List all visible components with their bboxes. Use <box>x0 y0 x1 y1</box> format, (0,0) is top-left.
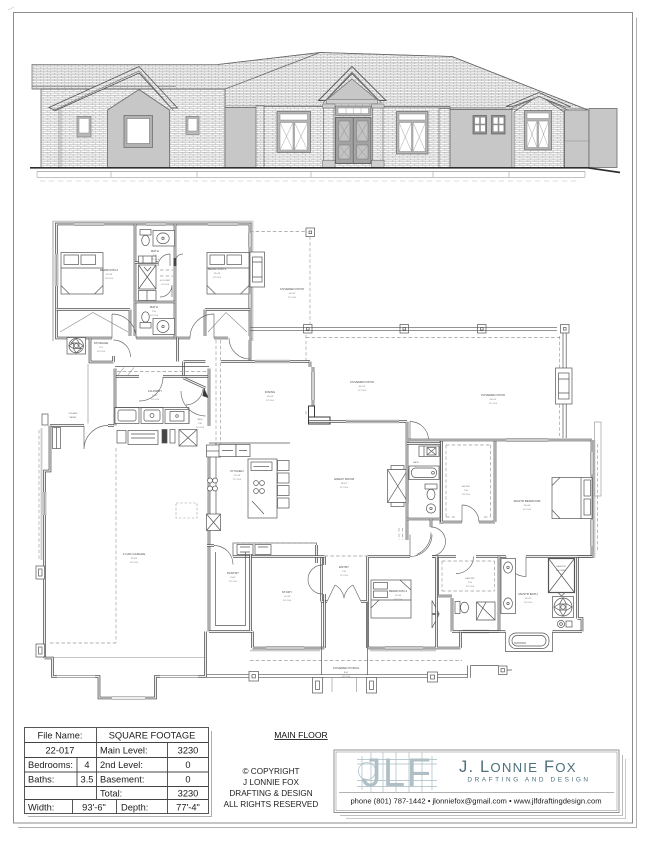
svg-text:10' CLG: 10' CLG <box>105 278 113 280</box>
svg-text:10' CLG: 10' CLG <box>394 599 402 601</box>
svg-text:7'x6': 7'x6' <box>198 423 203 425</box>
svg-text:Main Level:: Main Level: <box>100 746 148 756</box>
svg-text:3.5: 3.5 <box>81 775 94 785</box>
svg-text:10' CLG: 10' CLG <box>524 602 532 604</box>
svg-text:10' CLG: 10' CLG <box>342 676 350 678</box>
svg-text:10' CLG: 10' CLG <box>283 600 291 602</box>
svg-text:JLF: JLF <box>361 751 432 795</box>
svg-text:PANTRY: PANTRY <box>227 571 239 575</box>
svg-text:MUD: MUD <box>198 419 203 421</box>
svg-text:MASTR BATH: MASTR BATH <box>518 592 537 596</box>
svg-text:BATH: BATH <box>151 249 159 253</box>
svg-text:14'x13': 14'x13' <box>267 396 274 398</box>
svg-text:phone (801) 787-1442 • jlonnie: phone (801) 787-1442 • jlonniefox@gmail.… <box>350 797 601 806</box>
svg-text:12' CLG: 12' CLG <box>358 390 366 392</box>
svg-text:12'x13': 12'x13' <box>106 274 113 276</box>
svg-text:DINING: DINING <box>265 390 276 394</box>
svg-text:12'x13': 12'x13' <box>214 273 221 275</box>
svg-text:11'x13': 11'x13' <box>395 595 402 597</box>
svg-text:PANEL: PANEL <box>69 416 77 419</box>
svg-text:DRAFTING AND DESIGN: DRAFTING AND DESIGN <box>467 777 590 784</box>
svg-text:BATH: BATH <box>413 461 419 464</box>
svg-text:4: 4 <box>84 760 89 770</box>
svg-text:0: 0 <box>185 775 190 785</box>
svg-text:MAIN FLOOR: MAIN FLOOR <box>274 730 327 740</box>
svg-text:COVERED PATIO: COVERED PATIO <box>481 393 506 397</box>
svg-text:HIS WIC: HIS WIC <box>462 486 471 488</box>
svg-text:12'x12': 12'x12' <box>525 598 532 600</box>
svg-text:3230: 3230 <box>178 746 199 756</box>
svg-text:SQUARE FOOTAGE: SQUARE FOOTAGE <box>109 731 196 741</box>
svg-text:© COPYRIGHT: © COPYRIGHT <box>243 767 300 776</box>
svg-text:10' CLG: 10' CLG <box>213 277 221 279</box>
svg-text:10' CLG: 10' CLG <box>523 509 531 511</box>
svg-text:7'x9': 7'x9' <box>342 571 347 573</box>
svg-text:LAUNDRY: LAUNDRY <box>148 389 162 393</box>
svg-text:200 AMP: 200 AMP <box>69 412 78 415</box>
svg-text:12' CLG: 12' CLG <box>233 479 241 481</box>
svg-text:Depth:: Depth: <box>121 803 148 813</box>
svg-text:77'-4": 77'-4" <box>176 803 200 813</box>
svg-text:10'x12': 10'x12' <box>289 293 296 295</box>
svg-text:Width:: Width: <box>28 803 54 813</box>
svg-text:0: 0 <box>185 760 190 770</box>
svg-text:22-017: 22-017 <box>46 746 75 756</box>
svg-text:ENTRY: ENTRY <box>339 565 349 569</box>
svg-text:File Name:: File Name: <box>38 731 83 741</box>
svg-text:10' CLG: 10' CLG <box>97 351 105 353</box>
svg-text:STORAGE: STORAGE <box>94 341 109 345</box>
svg-text:3230: 3230 <box>178 789 199 799</box>
svg-text:2nd Level:: 2nd Level: <box>100 760 143 770</box>
svg-text:17'x13': 17'x13' <box>234 475 241 477</box>
svg-text:10' CLG: 10' CLG <box>462 494 470 496</box>
svg-text:HER WIC: HER WIC <box>465 578 475 580</box>
svg-text:93'-6": 93'-6" <box>82 803 106 813</box>
svg-text:J. LONNIE FOX: J. LONNIE FOX <box>459 758 577 776</box>
svg-text:12' CLG: 12' CLG <box>489 403 497 405</box>
svg-text:12' CLG: 12' CLG <box>340 487 348 489</box>
svg-text:DRAFTING & DESIGN: DRAFTING & DESIGN <box>229 789 312 798</box>
svg-text:7'x9': 7'x9' <box>464 490 469 492</box>
svg-text:10' CLG: 10' CLG <box>150 315 158 317</box>
svg-text:COVERED PATIO: COVERED PATIO <box>350 380 375 384</box>
svg-text:10' CLG: 10' CLG <box>196 427 204 429</box>
svg-text:MASTR BEDROOM: MASTR BEDROOM <box>514 499 541 503</box>
svg-text:COVERED PATIO: COVERED PATIO <box>280 287 305 291</box>
svg-text:11'x14': 11'x14' <box>284 596 291 598</box>
svg-text:S.CLOSET: S.CLOSET <box>160 280 171 282</box>
svg-text:10'x7': 10'x7' <box>152 395 158 397</box>
svg-text:3 CAR GARAGE: 3 CAR GARAGE <box>123 552 146 556</box>
svg-text:12' CLG: 12' CLG <box>288 297 296 299</box>
svg-text:BEDROOM 2: BEDROOM 2 <box>100 268 118 272</box>
svg-text:7'x7': 7'x7' <box>99 347 104 349</box>
svg-text:BATH: BATH <box>150 305 158 309</box>
svg-text:COVERED PORCH: COVERED PORCH <box>333 666 360 670</box>
svg-text:10' CLG: 10' CLG <box>229 581 237 583</box>
svg-text:7'x5': 7'x5' <box>468 582 473 584</box>
svg-text:7'x5': 7'x5' <box>152 311 157 313</box>
svg-text:14'x16': 14'x16' <box>524 505 531 507</box>
svg-text:KITCHEN: KITCHEN <box>230 469 243 473</box>
svg-text:37'x25': 37'x25' <box>131 558 138 560</box>
svg-text:J LONNIE FOX: J LONNIE FOX <box>243 778 299 787</box>
svg-text:BEDROOM 4: BEDROOM 4 <box>389 589 407 593</box>
svg-text:8'x4': 8'x4' <box>344 672 349 674</box>
svg-text:12' CLG: 12' CLG <box>266 400 274 402</box>
svg-text:10' CLG: 10' CLG <box>466 586 474 588</box>
svg-text:10' CLG: 10' CLG <box>130 562 138 564</box>
svg-text:MASTER: MASTER <box>556 565 566 568</box>
svg-text:STUDY: STUDY <box>282 590 292 594</box>
svg-text:Baths:: Baths: <box>28 775 54 785</box>
svg-text:Basement:: Basement: <box>100 775 144 785</box>
svg-text:SHOWER: SHOWER <box>556 570 566 572</box>
svg-text:26'x12': 26'x12' <box>490 399 497 401</box>
svg-text:Total:: Total: <box>100 789 122 799</box>
svg-text:42'x12': 42'x12' <box>359 386 366 388</box>
svg-text:Bedrooms:: Bedrooms: <box>28 760 73 770</box>
svg-text:19'x21': 19'x21' <box>341 483 348 485</box>
svg-text:6'x12': 6'x12' <box>230 577 236 579</box>
svg-text:10' CLG: 10' CLG <box>151 399 159 401</box>
svg-text:10' CLG: 10' CLG <box>161 284 169 286</box>
svg-text:7'x5': 7'x5' <box>153 255 158 257</box>
svg-text:12' CLG: 12' CLG <box>340 575 348 577</box>
svg-text:BEDROOM 3: BEDROOM 3 <box>208 267 226 271</box>
svg-text:10' CLG: 10' CLG <box>151 259 159 261</box>
svg-text:GREAT ROOM: GREAT ROOM <box>334 477 355 481</box>
svg-text:ALL RIGHTS RESERVED: ALL RIGHTS RESERVED <box>224 800 319 809</box>
